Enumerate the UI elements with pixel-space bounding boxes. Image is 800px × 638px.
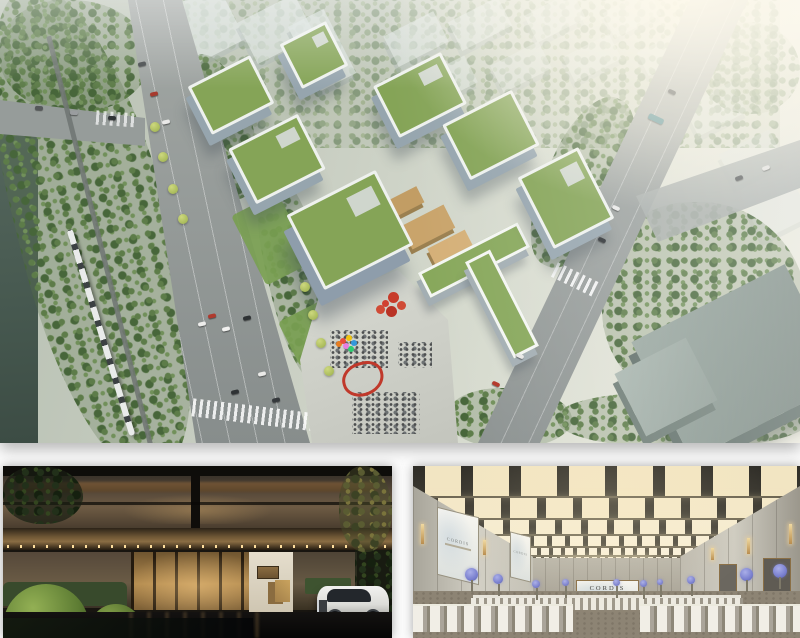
chandelier-row (501, 548, 712, 555)
flower-arrangement (657, 579, 663, 585)
tree-canopy-right (339, 466, 392, 552)
street-tree (168, 184, 178, 194)
wall-led-screen-far: CORDIS (510, 531, 531, 582)
street-tree (324, 366, 334, 376)
flower-arrangement (532, 580, 540, 588)
wall-sconce (711, 548, 714, 560)
flower-arrangement (613, 579, 620, 586)
flower-arrangement (562, 579, 569, 586)
street-tree (150, 122, 160, 132)
roof-equipment (311, 31, 328, 47)
car (70, 111, 78, 116)
wall-sconce (789, 524, 792, 544)
street-tree (158, 152, 168, 162)
flower-arrangement (773, 564, 787, 578)
aerial-campus-photo[interactable] (0, 0, 800, 443)
wall-sconce (421, 524, 424, 544)
roof-equipment (347, 186, 381, 217)
balloon-cluster (340, 338, 346, 344)
ballroom-photo[interactable]: CORDIS CORDIS CORDIS (413, 466, 800, 638)
flower-arrangement (687, 576, 695, 584)
water-feature (3, 618, 253, 638)
flower-arrangement (740, 568, 753, 581)
flower-arrangement (465, 568, 478, 581)
tree-canopy-left (3, 466, 83, 524)
chandelier-row (429, 498, 784, 518)
street-tree (316, 338, 326, 348)
tree-cluster (0, 0, 150, 112)
photo-collage: CORDIS CORDIS CORDIS (0, 0, 800, 638)
wall-screen-far-text: CORDIS (511, 549, 530, 558)
crosswalk (96, 111, 137, 128)
car (492, 380, 501, 387)
bronze-plaque (257, 566, 279, 579)
car (35, 106, 43, 111)
chandelier-row (451, 520, 762, 534)
leaning-art-panels (275, 580, 290, 602)
red-sculpture-coral (382, 300, 389, 307)
plaza-crowd (352, 392, 420, 434)
street-tree (300, 282, 310, 292)
street-tree (178, 214, 188, 224)
roof-equipment (419, 64, 444, 86)
chair-row-near-right (640, 606, 800, 632)
plaza-crowd (398, 342, 432, 368)
wall-sconce (747, 538, 750, 554)
flower-arrangement (493, 574, 503, 584)
canopy-lights (7, 545, 388, 548)
car (108, 116, 116, 121)
wall-sconce (483, 540, 486, 555)
roof-equipment (275, 126, 301, 149)
chair-row-near-left (413, 606, 573, 632)
street-tree (308, 310, 318, 320)
chandelier-row (413, 466, 800, 496)
podium-v-arm (465, 250, 539, 359)
flower-arrangement (640, 580, 647, 587)
roof-equipment (560, 161, 585, 187)
car-windows (327, 589, 371, 602)
revolving-door-entrance (131, 552, 263, 610)
hotel-entrance-photo[interactable] (3, 466, 392, 638)
